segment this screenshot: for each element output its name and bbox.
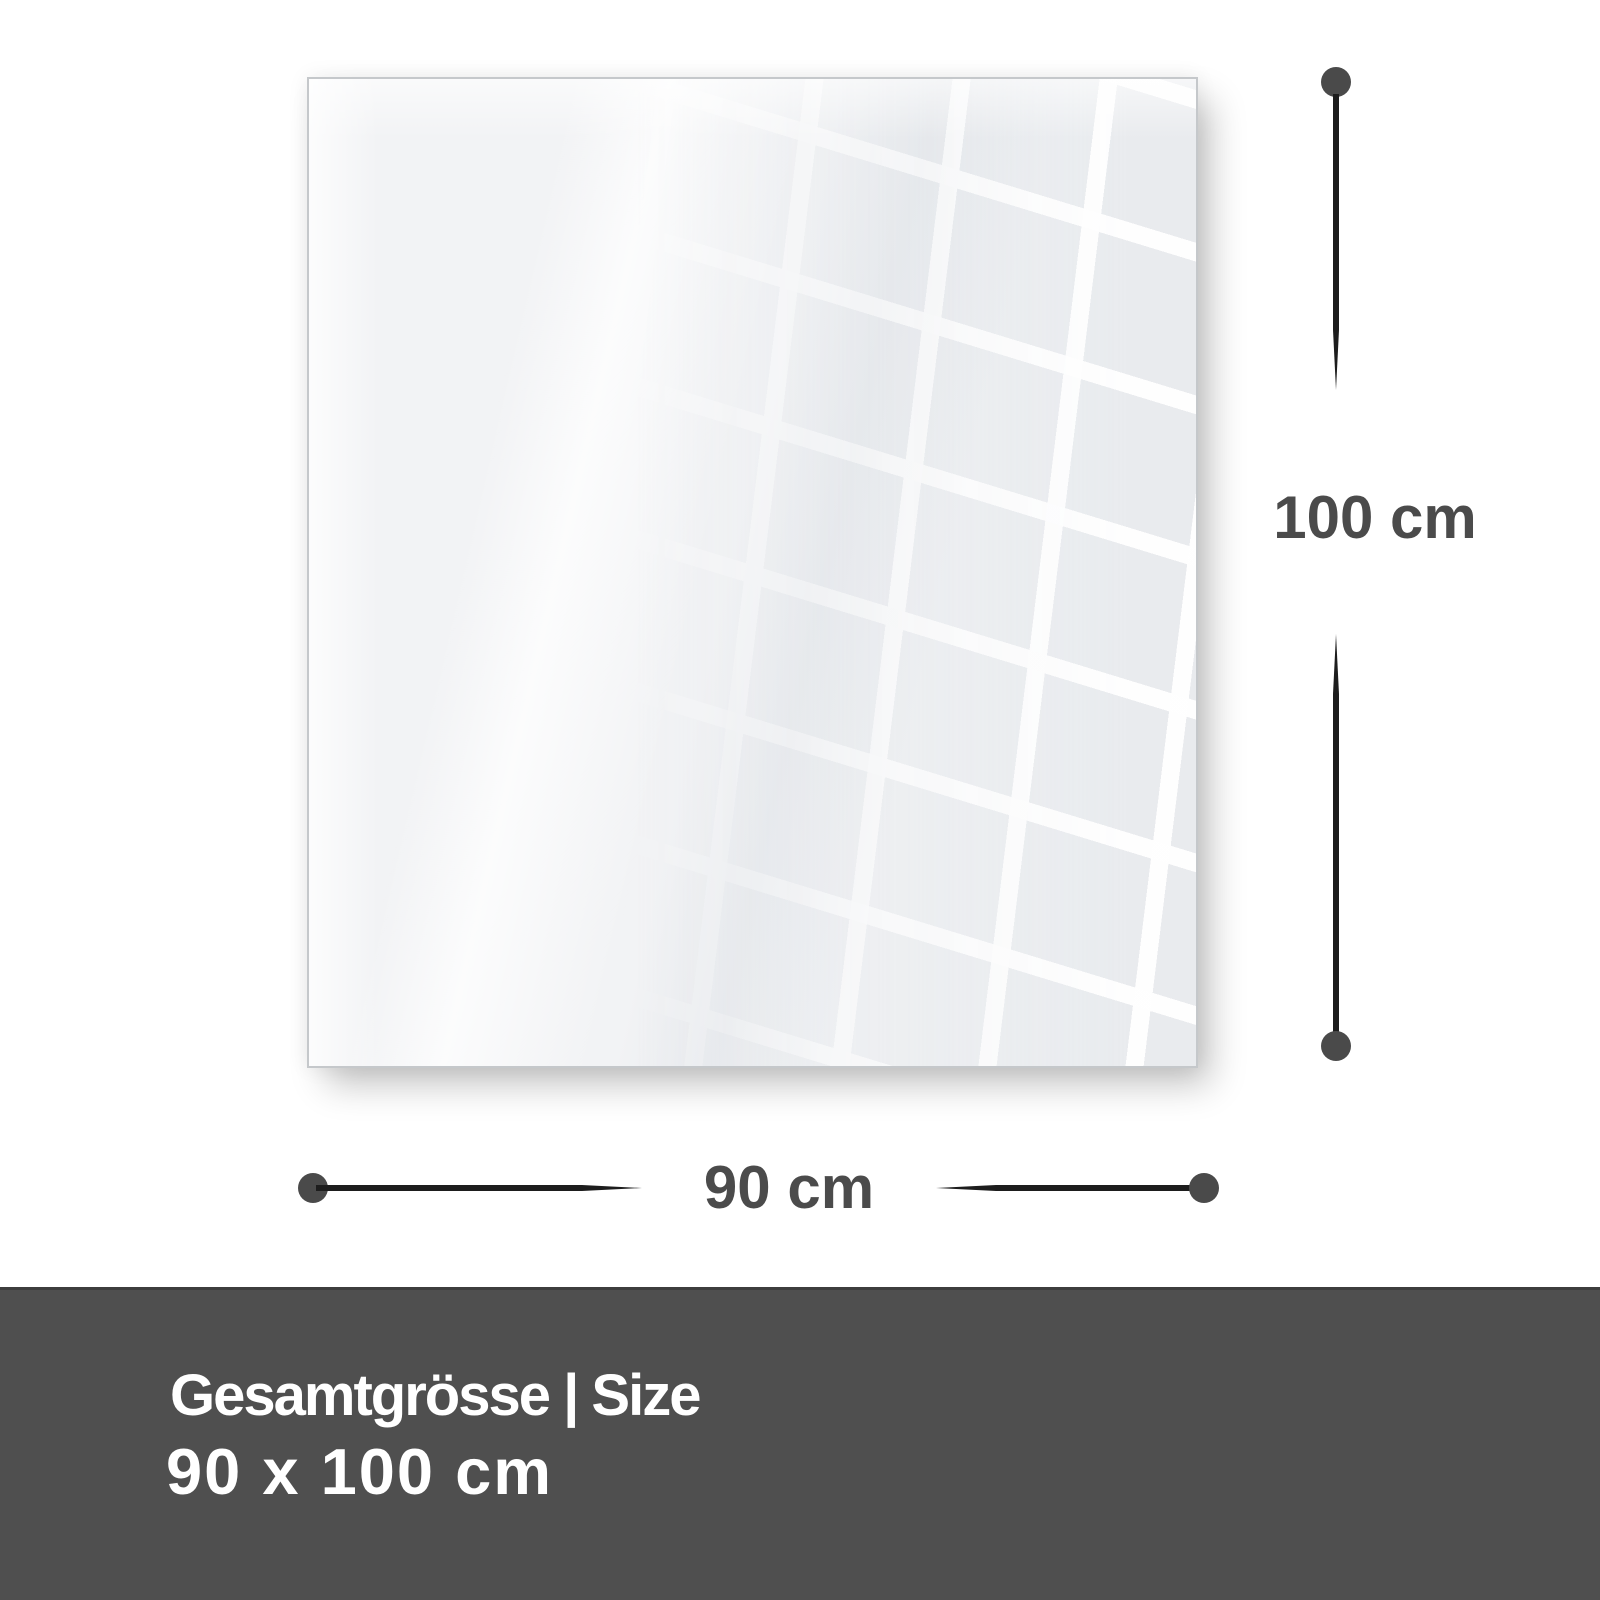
dimension-endpoint-dot xyxy=(1321,1031,1351,1061)
footer-title: Gesamtgrösse | Size xyxy=(170,1367,699,1425)
width-dimension-label: 90 cm xyxy=(659,1158,919,1218)
footer-bar: Gesamtgrösse | Size 90 x 100 cm xyxy=(0,1287,1600,1600)
dimension-line xyxy=(1333,94,1339,390)
dimension-line xyxy=(1333,634,1339,1034)
dimension-line xyxy=(936,1185,1204,1191)
dimension-line xyxy=(316,1185,642,1191)
panel-edge-highlight xyxy=(309,79,1196,1066)
product-size-diagram: 100 cm 90 cm Gesamtgrösse | Size 90 x 10… xyxy=(0,0,1600,1600)
glass-panel xyxy=(307,77,1198,1068)
dimension-endpoint-dot xyxy=(1189,1173,1219,1203)
dimension-endpoint-dot xyxy=(1321,67,1351,97)
height-dimension-label: 100 cm xyxy=(1245,488,1505,548)
footer-size-value: 90 x 100 cm xyxy=(166,1439,553,1504)
